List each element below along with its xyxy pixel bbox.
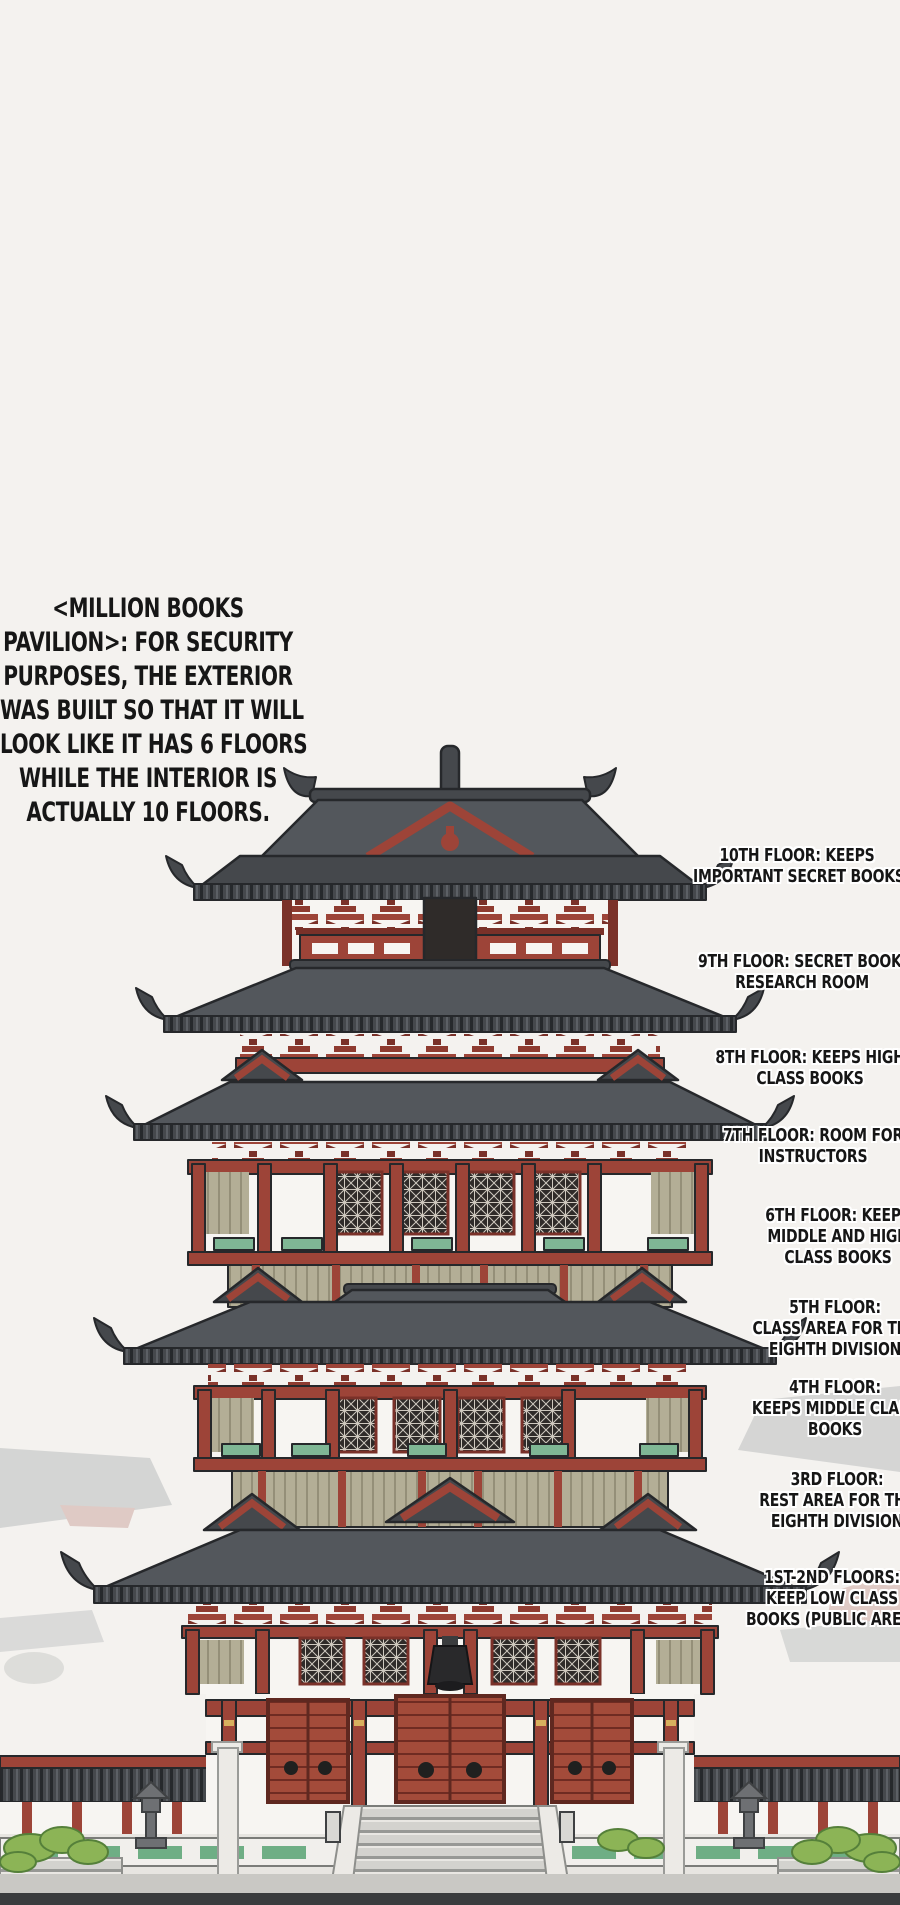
floor-label-3: 3RD FLOOR: REST AREA FOR THE EIGHTH DIVI…	[733, 1470, 900, 1533]
floor-label-8: 8TH FLOOR: KEEPS HIGH CLASS BOOKS	[706, 1048, 900, 1090]
roof-tier-4	[94, 1268, 806, 1388]
floor-label-4: 4TH FLOOR: KEEPS MIDDLE CLASS BOOKS	[731, 1378, 900, 1441]
balcony-10th-floor	[282, 898, 618, 966]
floor-label-5: 5TH FLOOR: CLASS AREA FOR THE EIGHTH DIV…	[731, 1298, 900, 1361]
roof-tier-2	[136, 960, 764, 1073]
roof-tier-5	[61, 1478, 839, 1630]
floor-label-10: 10TH FLOOR: KEEPS IMPORTANT SECRET BOOKS	[693, 846, 900, 888]
window-band-middle	[194, 1386, 706, 1471]
floor-label-7: 7TH FLOOR: ROOM FOR INSTRUCTORS	[709, 1126, 900, 1168]
entrance-doors	[268, 1696, 632, 1802]
ground-level	[0, 1636, 900, 1905]
floor-label-6: 6TH FLOOR: KEEPS MIDDLE AND HIGH CLASS B…	[734, 1206, 900, 1269]
comic-panel: <MILLION BOOKS PAVILION>: FOR SECURITY P…	[0, 0, 900, 1905]
floor-label-1-2: 1ST-2ND FLOORS: KEEP LOW CLASS BOOKS (PU…	[728, 1568, 900, 1631]
intro-caption: <MILLION BOOKS PAVILION>: FOR SECURITY P…	[0, 592, 296, 830]
window-band-upper	[188, 1160, 712, 1265]
floor-label-9: 9TH FLOOR: SECRET BOOKS RESEARCH ROOM	[698, 952, 900, 994]
